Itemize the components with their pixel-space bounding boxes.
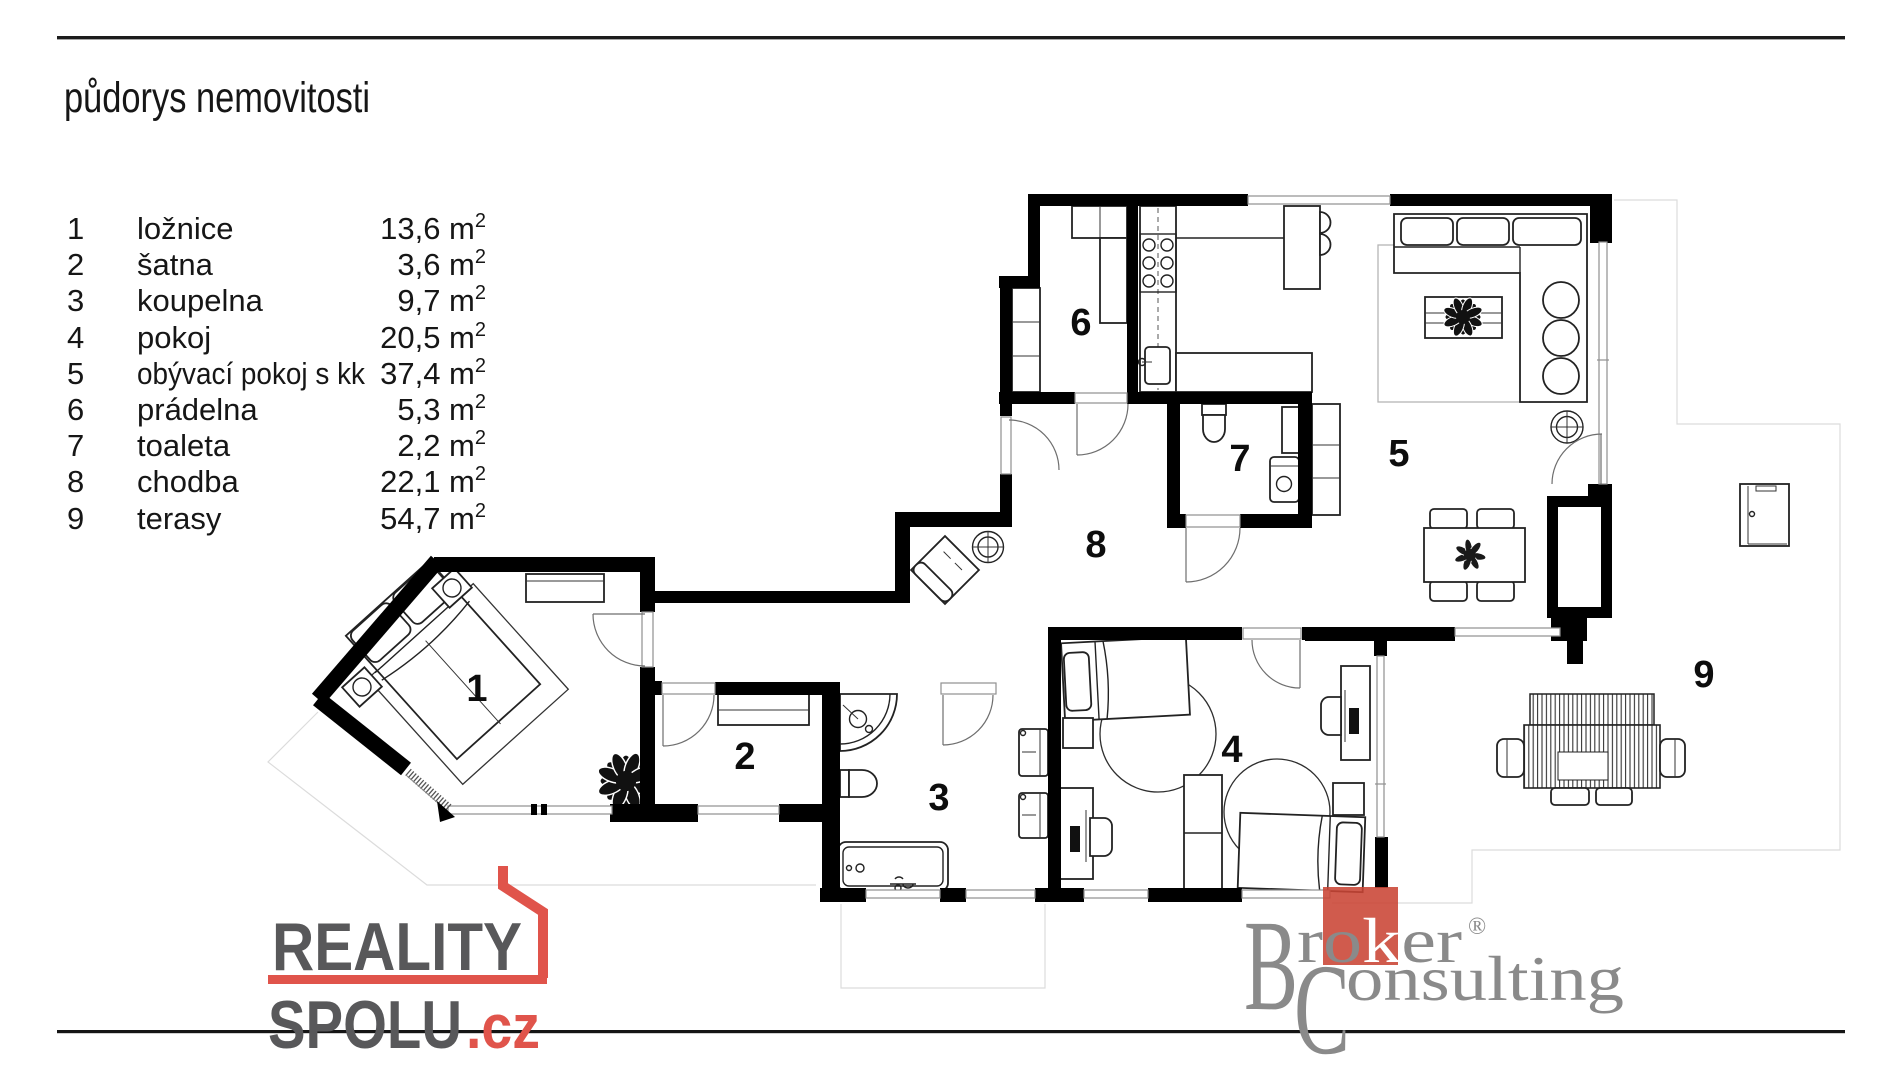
svg-text:SPOLU: SPOLU [268,987,462,1063]
svg-text:B: B [1244,894,1298,1038]
svg-text:4: 4 [67,320,84,355]
svg-text:7: 7 [67,428,84,463]
svg-text:9,7 m2: 9,7 m2 [397,282,486,318]
svg-text:37,4 m2: 37,4 m2 [380,355,486,391]
svg-text:pokoj: pokoj [137,320,211,355]
svg-text:C: C [1294,938,1350,1069]
svg-text:terasy: terasy [137,501,222,536]
svg-text:2: 2 [734,736,755,778]
svg-text:půdorys nemovitosti: půdorys nemovitosti [64,74,370,122]
svg-text:8: 8 [67,464,84,499]
svg-text:obývací pokoj s kk: obývací pokoj s kk [137,356,365,391]
svg-text:22,1 m2: 22,1 m2 [380,463,486,499]
svg-text:4: 4 [1221,729,1242,771]
svg-text:koupelna: koupelna [137,283,264,318]
svg-text:prádelna: prádelna [137,392,258,427]
svg-text:toaleta: toaleta [137,428,231,463]
svg-text:13,6 m2: 13,6 m2 [380,210,486,246]
svg-text:1: 1 [67,211,84,246]
svg-text:20,5 m2: 20,5 m2 [380,319,486,355]
svg-text:2: 2 [67,247,84,282]
svg-text:ložnice: ložnice [137,211,234,246]
svg-text:chodba: chodba [137,464,239,499]
svg-text:54,7 m2: 54,7 m2 [380,500,486,536]
svg-text:3: 3 [67,283,84,318]
svg-text:8: 8 [1085,524,1106,566]
svg-text:2,2 m2: 2,2 m2 [397,427,486,463]
svg-text:šatna: šatna [137,247,214,282]
svg-text:9: 9 [67,501,84,536]
svg-text:5: 5 [67,356,84,391]
svg-text:.cz: .cz [466,993,540,1062]
svg-text:1: 1 [466,668,487,710]
svg-text:5,3 m2: 5,3 m2 [397,391,486,427]
svg-text:®: ® [1468,914,1486,940]
svg-text:7: 7 [1229,438,1250,480]
svg-text:6: 6 [1070,302,1091,344]
svg-text:3,6 m2: 3,6 m2 [397,246,486,282]
svg-text:REALITY: REALITY [272,909,522,985]
svg-text:5: 5 [1388,433,1409,475]
svg-text:9: 9 [1693,654,1714,696]
svg-text:3: 3 [928,777,949,819]
svg-text:onsulting: onsulting [1346,943,1624,1014]
svg-text:6: 6 [67,392,84,427]
